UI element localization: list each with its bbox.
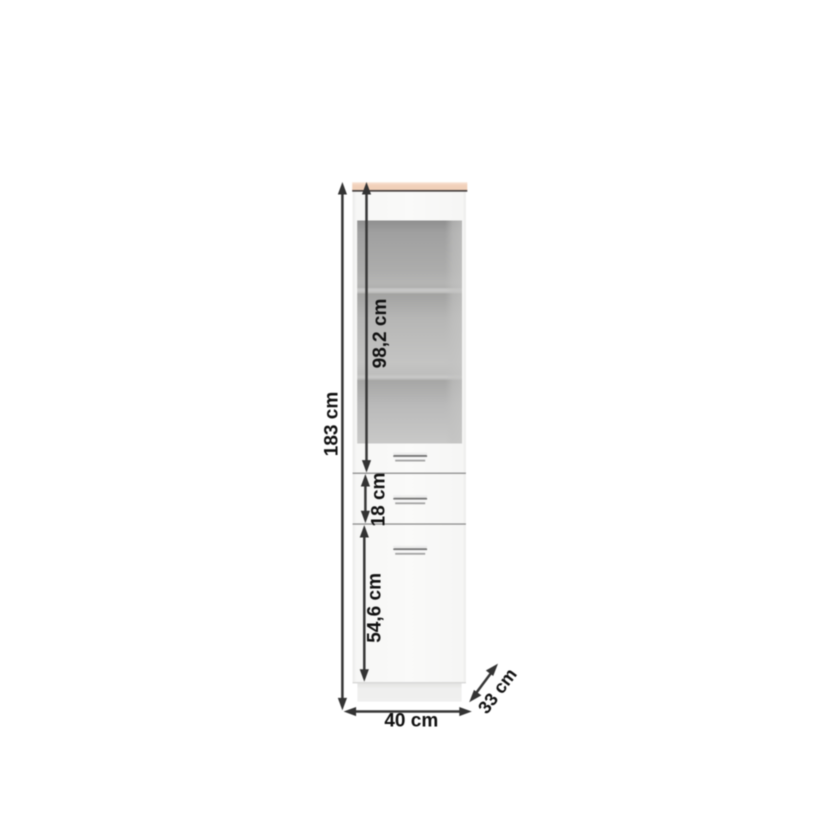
svg-text:40 cm: 40 cm (384, 711, 438, 732)
svg-text:183 cm: 183 cm (321, 392, 342, 456)
svg-text:98,2 cm: 98,2 cm (370, 299, 391, 369)
svg-text:33 cm: 33 cm (474, 665, 521, 718)
svg-text:54,6 cm: 54,6 cm (364, 573, 385, 643)
svg-text:18 cm: 18 cm (369, 473, 390, 527)
